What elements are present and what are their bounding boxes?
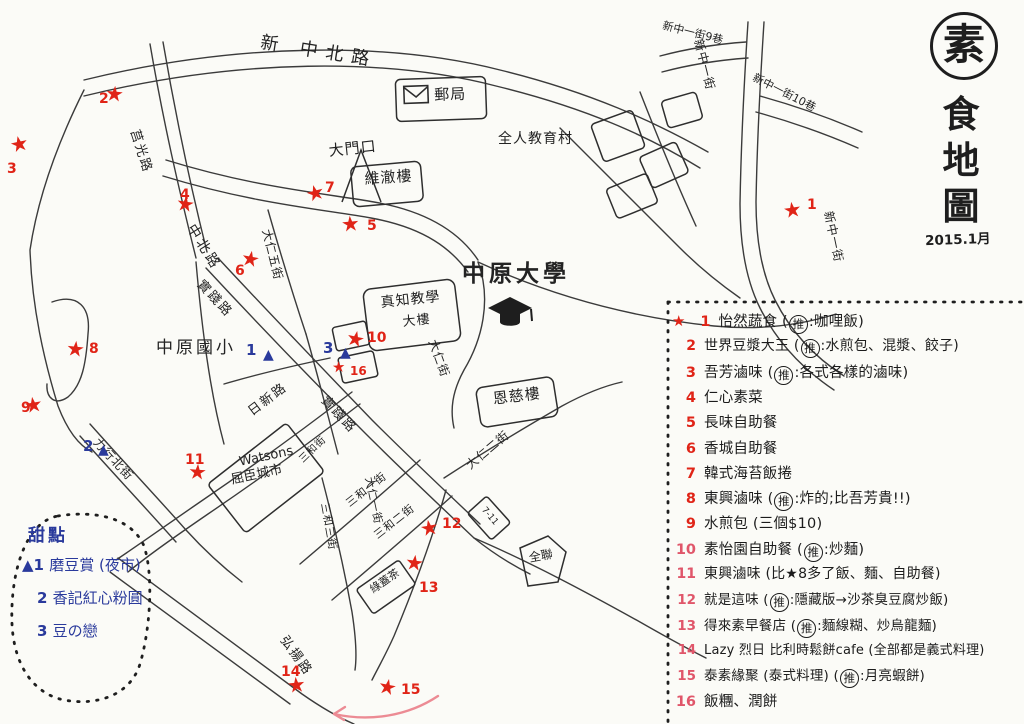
poi-star-3: ★ <box>8 132 31 156</box>
legend-item-text: 韓式海苔飯捲 <box>704 462 792 483</box>
dessert-marker-number-3: 3 <box>323 341 333 356</box>
legend-item-text: 吾芳滷味 (推:各式各樣的滷味) <box>704 361 908 385</box>
dessert-item-number: 3 <box>22 622 53 640</box>
legend-item-number: 3 <box>672 365 696 381</box>
poi-star-8: ★ <box>64 338 85 361</box>
legend-item-number: 16 <box>672 694 696 710</box>
poi-star-5: ★ <box>340 213 361 236</box>
poi-star-number-9: 9 <box>21 401 31 415</box>
legend-item-number: 10 <box>672 542 696 558</box>
legend-item: 10素怡園自助餐 (推:炒麵) <box>672 538 864 562</box>
map-label: 大樓 <box>402 313 431 329</box>
dessert-item-text: 磨豆賞 (夜市) <box>49 556 140 574</box>
circled-recommend-icon: 推 <box>801 339 820 358</box>
poi-star-number-13: 13 <box>419 581 438 595</box>
dessert-marker-triangle-1: ▲ <box>263 348 274 362</box>
title-char: 圖 <box>929 176 993 230</box>
legend-item: 7韓式海苔飯捲 <box>672 462 792 483</box>
dessert-item-number: ▲1 <box>22 556 49 574</box>
map-label: 郵局 <box>434 87 467 104</box>
legend-item-text: 水煎包 (三個$10) <box>704 512 822 533</box>
poi-star-number-2: 2 <box>99 92 109 106</box>
poi-star-number-12: 12 <box>442 517 461 531</box>
legend-item: 16飯糰、潤餅 <box>672 690 778 711</box>
legend-item-number: 9 <box>672 516 696 532</box>
dessert-item-text: 豆の戀 <box>53 622 98 640</box>
buildings <box>208 76 704 614</box>
legend-item-text: 泰素緣聚 (泰式料理) (推:月亮蝦餅) <box>704 664 925 688</box>
vegetarian-food-map: 素 食 地 圖 2015.1月 新 中北路莒光路中北路實踐路實踐路大仁五街大仁街… <box>0 0 1024 724</box>
legend-item-number: 4 <box>672 390 696 406</box>
poi-star-15: ★ <box>376 675 398 699</box>
legend-item: 4仁心素菜 <box>672 386 763 407</box>
dessert-marker-number-1: 1 <box>246 343 256 358</box>
legend-item-text: 得來素早餐店 (推:麵線糊、炒烏龍麵) <box>704 614 937 638</box>
legend-item: 13得來素早餐店 (推:麵線糊、炒烏龍麵) <box>672 614 937 638</box>
legend-item-text: 香城自助餐 <box>704 437 778 458</box>
legend-item-number: 1 <box>686 314 710 330</box>
poi-star-number-11: 11 <box>185 453 204 467</box>
legend-item: 9水煎包 (三個$10) <box>672 512 822 533</box>
poi-star-number-7: 7 <box>325 181 335 195</box>
circled-recommend-icon: 推 <box>840 669 859 688</box>
legend-item: ★1怡然蔬食 (推:咖哩飯) <box>672 310 864 334</box>
dessert-item: 3 豆の戀 <box>22 624 98 640</box>
legend-item: 8東興滷味 (推:炸的;比吾芳貴!!) <box>672 487 911 511</box>
poi-star-13: ★ <box>403 551 424 574</box>
star15-arrow <box>334 696 438 717</box>
graduation-cap-icon <box>488 297 532 326</box>
legend-item-number: 2 <box>672 338 696 354</box>
map-date: 2015.1月 <box>925 227 991 249</box>
poi-star-number-4: 4 <box>180 188 190 202</box>
legend-item: 3吾芳滷味 (推:各式各樣的滷味) <box>672 361 908 385</box>
campus-village-box <box>661 92 703 129</box>
legend-item-text: 素怡園自助餐 (推:炒麵) <box>704 538 864 562</box>
circled-recommend-icon: 推 <box>797 619 816 638</box>
map-label: 全人教育村 <box>498 132 573 147</box>
legend-item-text: 長味自助餐 <box>704 411 778 432</box>
legend-item: 14Lazy 烈日 比利時鬆餅cafe (全部都是義式料理) <box>672 639 985 658</box>
poi-star-number-8: 8 <box>89 342 99 356</box>
legend-item: 15泰素緣聚 (泰式料理) (推:月亮蝦餅) <box>672 664 925 688</box>
legend-item-number: 5 <box>672 415 696 431</box>
legend-item-number: 6 <box>672 441 696 457</box>
legend-item-text: 飯糰、潤餅 <box>704 690 778 711</box>
legend-item-number: 11 <box>672 566 696 582</box>
poi-star-number-5: 5 <box>367 219 377 233</box>
legend-item-text: 東興滷味 (比★8多了飯、麵、自助餐) <box>704 563 941 583</box>
legend-item-number: 13 <box>672 618 696 634</box>
title-stamp-circle: 素 <box>930 12 998 80</box>
legend-item: 2世界豆漿大王 (推:水煎包、混漿、餃子) <box>672 335 959 358</box>
campus-village-box <box>639 141 689 188</box>
legend-item-text: 仁心素菜 <box>704 386 763 407</box>
dessert-item: 2 香記紅心粉圓 <box>22 591 143 607</box>
legend-item-number: 14 <box>672 643 696 658</box>
envelope-icon <box>404 86 429 104</box>
map-label: 中原大學 <box>462 262 570 286</box>
poi-star-number-6: 6 <box>235 264 245 278</box>
legend-item: 11東興滷味 (比★8多了飯、麵、自助餐) <box>672 563 941 583</box>
dessert-item: ▲1 磨豆賞 (夜市) <box>22 558 141 574</box>
legend-item-number: 8 <box>672 491 696 507</box>
poi-star-12: ★ <box>418 516 440 540</box>
legend-item: 12就是這味 (推:隱藏版→沙茶臭豆腐炒飯) <box>672 588 949 612</box>
legend-item-text: 世界豆漿大王 (推:水煎包、混漿、餃子) <box>704 335 959 358</box>
legend-item-number: 15 <box>672 668 696 684</box>
legend-item-number: 7 <box>672 466 696 482</box>
poi-star-number-1: 1 <box>807 198 817 212</box>
dessert-marker-number-2: 2 <box>83 439 93 454</box>
circled-recommend-icon: 推 <box>774 492 793 511</box>
poi-star-number-14: 14 <box>281 665 300 679</box>
dessert-item-text: 香記紅心粉圓 <box>53 589 143 607</box>
dessert-marker-triangle-2: ▲ <box>98 443 109 457</box>
legend-item: 6香城自助餐 <box>672 437 778 458</box>
legend-item-text: Lazy 烈日 比利時鬆餅cafe (全部都是義式料理) <box>704 639 985 658</box>
legend-item-text: 怡然蔬食 (推:咖哩飯) <box>718 310 864 334</box>
legend-item-number: 12 <box>672 592 696 608</box>
legend-star-icon: ★ <box>672 312 685 330</box>
dessert-panel-title: 甜點 <box>28 528 68 546</box>
poi-star-number-10: 10 <box>367 331 386 345</box>
poi-star-number-16: 16 <box>350 365 367 377</box>
circled-recommend-icon: 推 <box>804 543 823 562</box>
legend-item-text: 東興滷味 (推:炸的;比吾芳貴!!) <box>704 487 911 511</box>
legend-item-text: 就是這味 (推:隱藏版→沙茶臭豆腐炒飯) <box>704 588 949 612</box>
map-label: 中原國小 <box>156 340 236 358</box>
poi-star-number-15: 15 <box>401 683 420 697</box>
map-label: 維澈樓 <box>364 169 413 188</box>
circled-recommend-icon: 推 <box>770 593 789 612</box>
dessert-item-number: 2 <box>22 589 53 607</box>
circled-recommend-icon: 推 <box>789 315 808 334</box>
legend-item: 5長味自助餐 <box>672 411 778 432</box>
poi-star-16: ★ <box>331 359 345 375</box>
campus-village-box <box>606 173 659 219</box>
dessert-marker-triangle-3: ▲ <box>340 346 351 360</box>
circled-recommend-icon: 推 <box>774 366 793 385</box>
poi-star-1: ★ <box>781 198 803 221</box>
poi-star-number-3: 3 <box>7 162 17 176</box>
